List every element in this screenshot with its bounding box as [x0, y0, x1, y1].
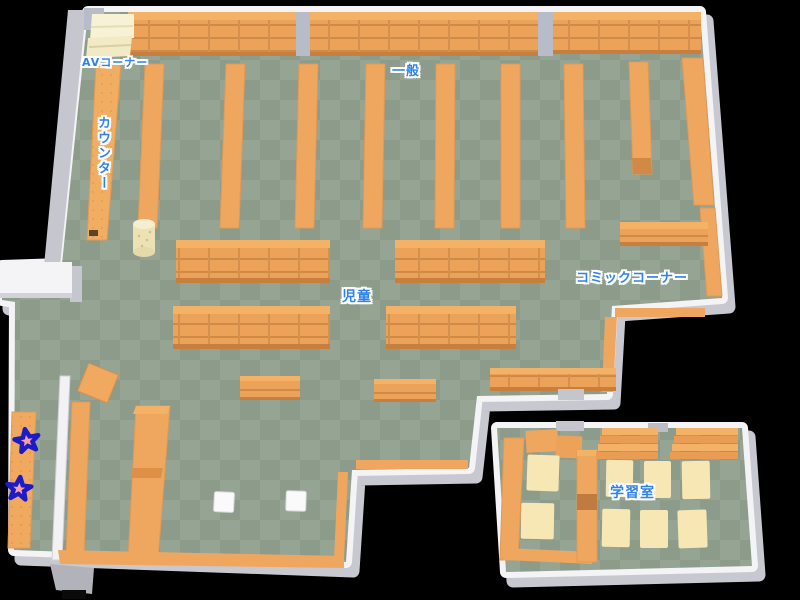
av-corner-shelves — [84, 8, 134, 58]
top-wall-bookshelves — [128, 12, 701, 56]
wall-base-shelf — [356, 460, 468, 469]
bench — [240, 376, 300, 400]
low-bookshelf — [386, 306, 516, 349]
bookshelf-row — [564, 64, 585, 228]
bench — [374, 379, 436, 402]
wall-pillar — [296, 12, 310, 56]
low-bookshelf — [395, 240, 545, 283]
label-children: 児童 — [342, 286, 372, 306]
stool — [286, 491, 307, 512]
study-table — [521, 503, 555, 540]
label-av-corner: AVコーナー — [82, 54, 148, 70]
wall-shelf-section-1 — [128, 12, 296, 56]
divider-shelf — [577, 450, 597, 562]
low-bookshelf — [490, 368, 616, 391]
study-table — [526, 454, 559, 491]
doorway — [558, 389, 584, 400]
label-counter: カウンター — [93, 116, 112, 191]
label-general: 一般 — [392, 60, 420, 79]
comic-shelf — [620, 222, 708, 246]
library-map-screen: AVコーナー 一般 カウンター 児童 コミックコーナー 学習室 — [0, 0, 800, 600]
entrance-gap — [62, 590, 86, 599]
wall-shelf-section-2 — [310, 12, 538, 56]
label-comic-corner: コミックコーナー — [576, 267, 688, 286]
bookshelf-row — [501, 64, 520, 228]
study-table — [602, 509, 631, 547]
stool — [213, 491, 234, 512]
study-table — [677, 509, 707, 548]
study-table — [640, 510, 668, 548]
bookshelf-row — [435, 64, 455, 228]
bookshelf-row — [363, 64, 385, 228]
study-table — [682, 461, 711, 499]
low-bookshelf — [173, 306, 330, 349]
bookshelf-row — [295, 64, 318, 228]
library-floor-map — [0, 0, 800, 600]
low-bookshelf — [176, 240, 330, 283]
label-study-room: 学習室 — [610, 482, 655, 502]
wall-base-shelf — [615, 308, 705, 317]
doorway — [556, 421, 584, 431]
wall-pillar — [538, 12, 553, 56]
left-notch-wall — [0, 262, 82, 302]
pillar-cylinder — [133, 219, 155, 257]
bookshelf-row — [629, 62, 652, 174]
small-shelf — [525, 429, 558, 453]
wall-shelf-section-3 — [553, 12, 701, 54]
entrance-step — [50, 564, 94, 594]
